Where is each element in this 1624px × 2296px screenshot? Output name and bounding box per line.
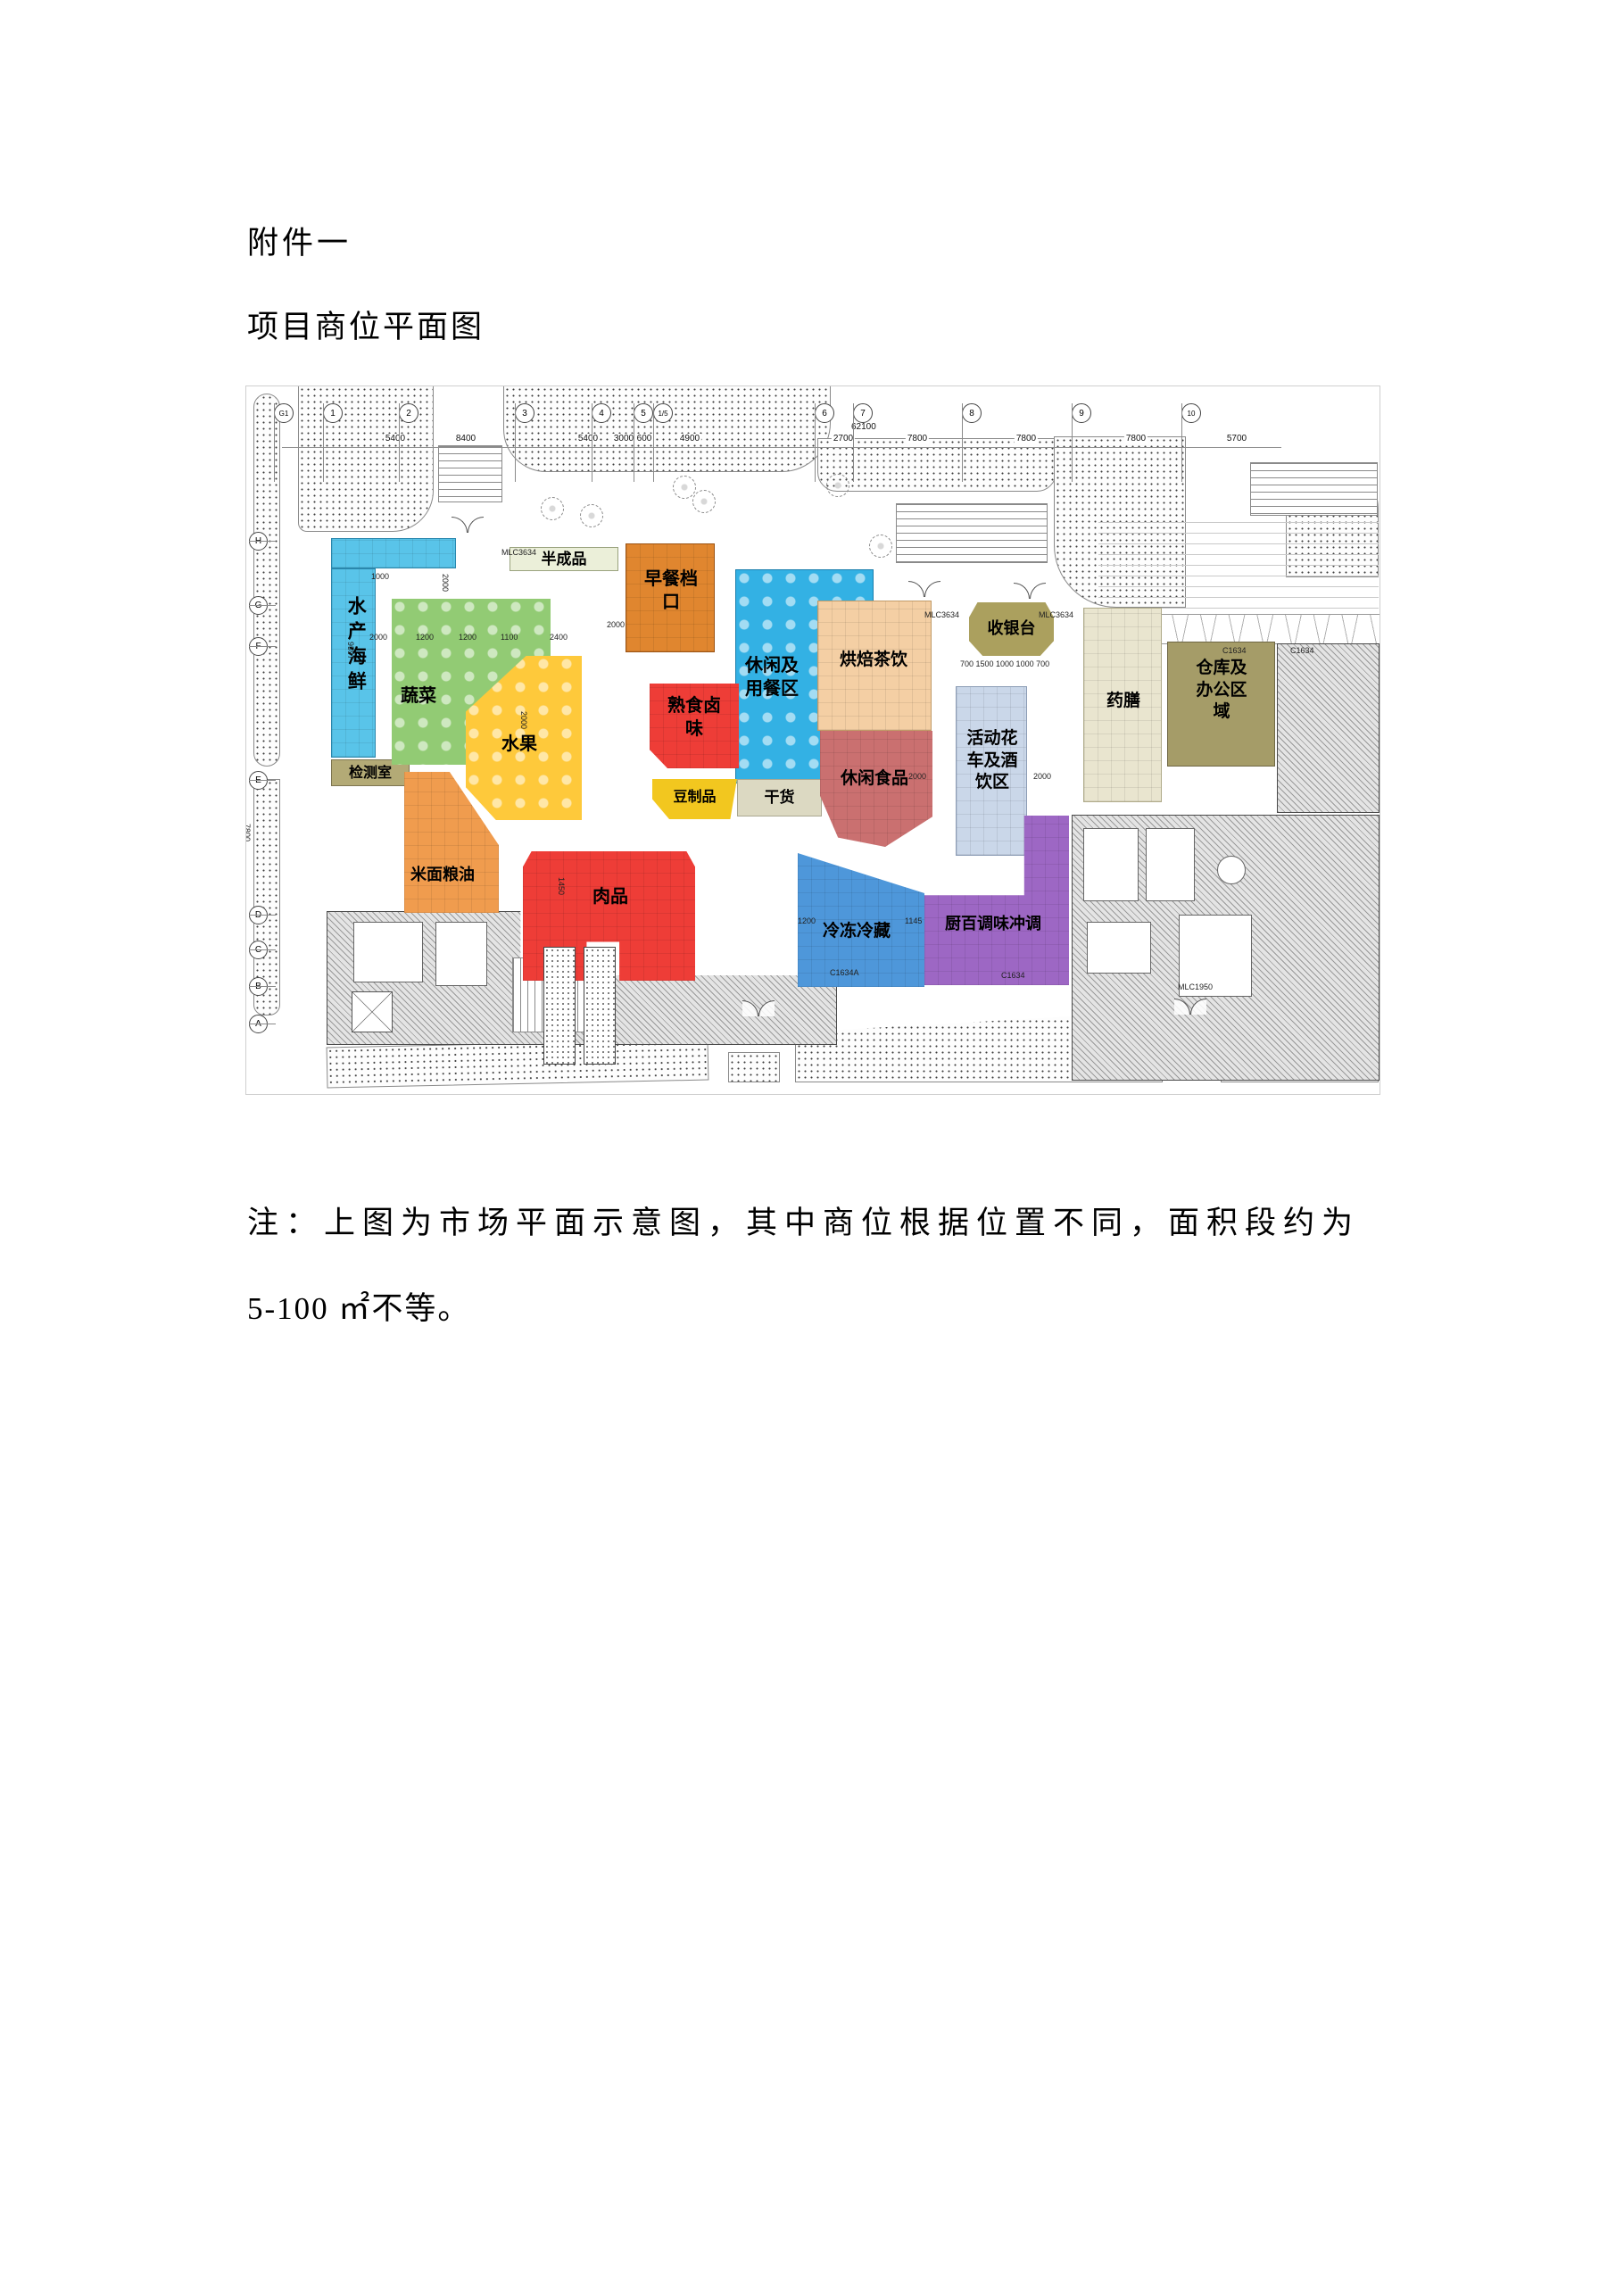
plan-annotation: 1145	[905, 916, 922, 925]
pavement-area-bottom	[327, 1040, 709, 1089]
dimension-label: 5400	[384, 434, 407, 443]
zone-cashier-label: 收银台	[969, 618, 1054, 639]
zone-rice-flour-oil-label: 米面粮油	[410, 865, 475, 885]
plan-annotation: MLC3634	[924, 610, 959, 619]
tree-icon	[869, 535, 892, 558]
plan-annotation: 1200	[798, 916, 816, 925]
zone-frozen-refrigerated-label: 冷冻冷藏	[823, 921, 891, 943]
plan-annotation: C1634	[1001, 971, 1025, 980]
stairs	[1250, 462, 1378, 516]
plan-annotation: 1100	[501, 633, 518, 642]
dimension-line	[282, 447, 1281, 448]
restroom	[1146, 828, 1195, 901]
zone-seafood-bar	[331, 538, 456, 568]
zone-cooked-food-label: 熟食卤味	[666, 694, 723, 741]
dimension-label: 7800	[1015, 434, 1038, 443]
zone-fruit-label: 水果	[501, 733, 537, 756]
plan-annotation: C1634A	[830, 968, 859, 977]
double-door-icon	[908, 581, 940, 597]
dimension-label: 3000	[612, 434, 635, 443]
dimension-label: 4900	[678, 434, 701, 443]
double-door-icon	[742, 1000, 775, 1016]
pavement-area-bottom	[728, 1052, 780, 1082]
zone-bean-products-label: 豆制品	[652, 789, 737, 808]
zone-bean-products: 豆制品	[652, 779, 737, 819]
zone-herbal-food: 药膳	[1083, 608, 1162, 802]
tree-icon	[673, 476, 696, 499]
attachment-title: 附件一	[247, 218, 352, 263]
plan-annotation: MLC1950	[1178, 982, 1213, 991]
plan-annotation: C1634	[1222, 646, 1247, 655]
zone-dry-goods: 干货	[737, 779, 822, 816]
plan-annotation: 2000	[908, 772, 926, 781]
dimension-label: 8400	[454, 434, 477, 443]
zone-vegetables-label: 蔬菜	[401, 684, 436, 708]
plan-annotation: 2000	[1033, 772, 1051, 781]
plan-annotation: 2000	[607, 620, 625, 629]
plan-annotation: 1200	[459, 633, 476, 642]
warehouse-hatch-room	[1277, 643, 1380, 813]
plan-annotation: 2400	[550, 633, 568, 642]
zone-cooked-food: 熟食卤味	[650, 684, 739, 768]
elevator-shaft-icon	[352, 991, 393, 1032]
grand-stairs	[896, 503, 1048, 563]
pavement-area	[503, 386, 831, 472]
pavement-strip-left	[253, 394, 280, 767]
loading-bay	[543, 947, 576, 1065]
back-room	[1087, 922, 1151, 974]
tree-icon	[826, 474, 849, 497]
plan-annotation: 1200	[416, 633, 434, 642]
double-door-icon	[1174, 999, 1206, 1015]
plan-annotation: 9597	[346, 642, 355, 659]
plan-annotation: 2000	[519, 711, 528, 729]
zone-bakery-tea: 烘焙茶饮	[817, 601, 932, 731]
plan-annotation: C1634	[1290, 646, 1314, 655]
zone-meat-label: 肉品	[592, 885, 628, 908]
back-room	[435, 922, 487, 986]
zone-event-cart-drinks: 活动花车及酒饮区	[956, 686, 1027, 856]
note-line-1: 注：上图为市场平面示意图，其中商位根据位置不同，面积段约为	[247, 1198, 1360, 1243]
round-table	[1217, 856, 1246, 884]
zone-snack-food-label: 休闲食品	[841, 768, 908, 791]
zone-bakery-tea-label: 烘焙茶饮	[840, 650, 907, 672]
floor-plan-figure: 水产海鲜 检测室 蔬菜 水果 半成品 早餐档口 休闲及用餐区 烘焙茶饮 收银台 …	[245, 385, 1380, 1095]
restroom	[1083, 828, 1139, 901]
dimension-label: 7800	[906, 434, 929, 443]
zone-breakfast-stall: 早餐档口	[626, 543, 715, 652]
stairs	[438, 445, 502, 502]
zone-breakfast-stall-label: 早餐档口	[643, 568, 699, 614]
zone-test-room-label: 检测室	[332, 765, 409, 783]
canopy-roof-lines	[1098, 522, 1379, 609]
zone-dry-goods-label: 干货	[738, 788, 821, 808]
plan-annotation: MLC3634	[501, 548, 536, 557]
dimension-label: 5700	[1225, 434, 1248, 443]
plan-annotation: 1450	[557, 877, 566, 895]
back-room	[353, 922, 423, 982]
note-line-2: 5-100 ㎡不等。	[247, 1283, 470, 1329]
dimension-label: 600	[635, 434, 654, 443]
zone-event-cart-drinks-label: 活动花车及酒饮区	[961, 728, 1023, 794]
dimension-label: 2700	[832, 434, 855, 443]
double-door-icon	[1014, 583, 1046, 599]
figure-title: 项目商位平面图	[247, 302, 485, 347]
zone-herbal-food-label: 药膳	[1106, 691, 1140, 713]
plan-annotation: 2000	[441, 574, 450, 592]
plan-annotation: 7800	[245, 824, 252, 841]
plan-annotation: 1000	[371, 572, 389, 581]
tree-icon	[580, 504, 603, 527]
zone-warehouse-office-label: 仓库及办公区域	[1190, 658, 1253, 724]
tree-icon	[541, 497, 564, 520]
zone-warehouse-office: 仓库及办公区域	[1167, 642, 1275, 767]
dimension-label: 5400	[576, 434, 600, 443]
loading-bay	[584, 947, 616, 1065]
plan-annotation: MLC3634	[1039, 610, 1073, 619]
double-door-icon	[452, 517, 484, 533]
dimension-label: 7800	[1124, 434, 1148, 443]
zone-snack-food: 休闲食品	[820, 731, 932, 847]
plan-annotation: 2000	[369, 633, 387, 642]
plan-annotation: 700 1500 1000 1000 700	[960, 659, 1049, 668]
tree-icon	[692, 490, 716, 513]
zone-kitchen-seasoning-label: 厨百调味冲调	[945, 914, 1041, 934]
document-page: { "document": { "attachment_label": "附件一…	[0, 0, 1624, 2296]
zone-seafood: 水产海鲜	[331, 568, 376, 758]
zone-leisure-dining-label: 休闲及用餐区	[745, 654, 804, 700]
